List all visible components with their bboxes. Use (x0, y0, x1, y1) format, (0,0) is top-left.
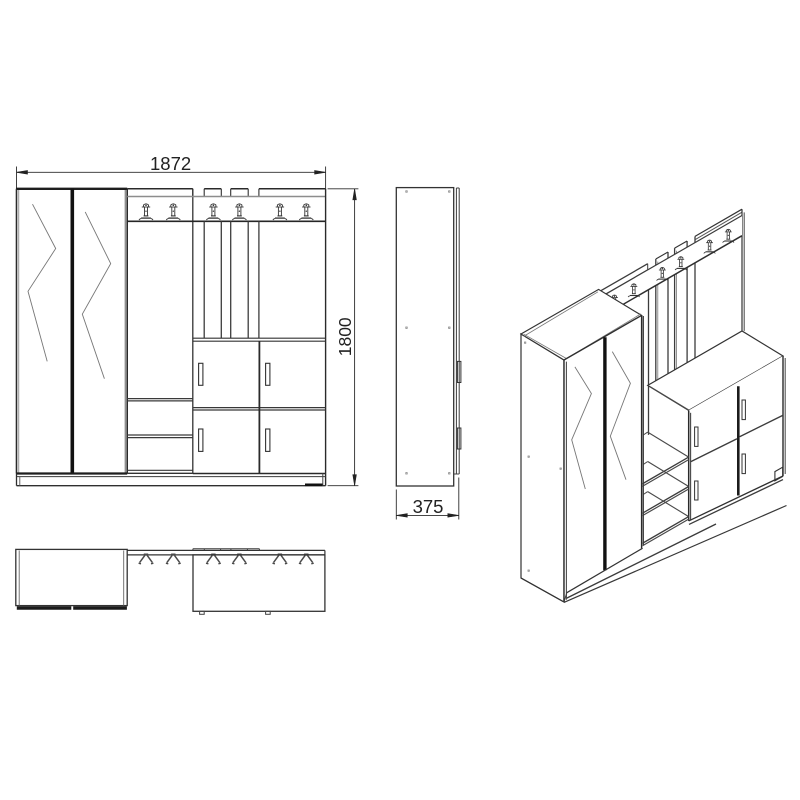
svg-text:375: 375 (413, 496, 444, 517)
svg-text:1800: 1800 (335, 317, 355, 356)
svg-text:1872: 1872 (150, 153, 191, 174)
